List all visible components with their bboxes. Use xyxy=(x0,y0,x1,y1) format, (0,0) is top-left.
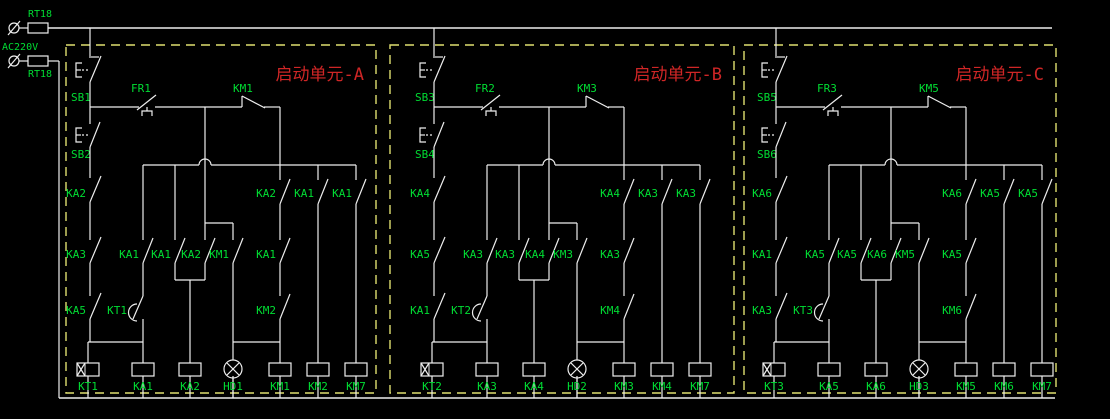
coil-label: KM7 xyxy=(346,380,366,393)
fuse-icon xyxy=(28,56,48,66)
component-label: KA5 xyxy=(942,248,962,261)
unit-frame xyxy=(390,45,734,393)
coil-label: KM6 xyxy=(994,380,1014,393)
component-label: KA5 xyxy=(66,304,86,317)
coil-label: KM7 xyxy=(1032,380,1052,393)
relay-coil xyxy=(269,363,291,376)
unit-title: 启动单元-C xyxy=(956,65,1044,85)
component-label: KA2 xyxy=(256,187,276,200)
component-label: KA5 xyxy=(837,248,857,261)
fuse-icon xyxy=(28,23,48,33)
circuit-schematic: RT18AC220VRT18启动单元-ASB1SB2KA2KA3KA5FR1KM… xyxy=(0,0,1110,419)
contact-blade xyxy=(280,179,290,204)
component-label: KA3 xyxy=(676,187,696,200)
component-label: KA1 xyxy=(294,187,314,200)
unit-frame xyxy=(66,45,376,393)
relay-coil xyxy=(689,363,711,376)
component-label: KA1 xyxy=(332,187,352,200)
component-label: KA1 xyxy=(119,248,139,261)
coil-label: KM2 xyxy=(308,380,328,393)
contact-blade xyxy=(356,179,366,204)
coil-label: KM5 xyxy=(956,380,976,393)
contact-blade xyxy=(434,293,445,319)
contact-blade xyxy=(586,96,609,108)
stop-button-label: SB3 xyxy=(415,91,435,104)
voltage-label: AC220V xyxy=(2,42,38,53)
stop-button-label: SB5 xyxy=(757,91,777,104)
coil-label: HD1 xyxy=(223,380,243,393)
start-button-label: SB2 xyxy=(71,148,91,161)
contact-blade xyxy=(966,294,976,319)
contact-blade xyxy=(90,293,101,319)
contact-blade xyxy=(90,237,101,263)
component-label: KA6 xyxy=(867,248,887,261)
relay-coil xyxy=(179,363,201,376)
relay-coil xyxy=(345,363,367,376)
coil-label: KA6 xyxy=(866,380,886,393)
relay-coil xyxy=(955,363,977,376)
contact-blade xyxy=(318,179,328,204)
component-label: KA3 xyxy=(600,248,620,261)
contact-blade xyxy=(776,56,787,82)
thermal-heater-icon xyxy=(142,111,152,116)
coil-label: KM7 xyxy=(690,380,710,393)
contact-blade xyxy=(90,56,101,82)
coil-label: KA3 xyxy=(477,380,497,393)
contact-blade xyxy=(624,294,634,319)
component-label: KA5 xyxy=(805,248,825,261)
contact-blade xyxy=(133,296,143,319)
contact-blade xyxy=(966,238,976,263)
component-label: KA4 xyxy=(600,187,620,200)
component-label: KA4 xyxy=(525,248,545,261)
start-unit-A: 启动单元-ASB1SB2KA2KA3KA5FR1KM1KA1KT1KA1KA2K… xyxy=(66,28,376,398)
component-label: KA1 xyxy=(151,248,171,261)
contact-blade xyxy=(434,237,445,263)
thermal-relay-label: FR1 xyxy=(131,82,151,95)
start-unit-B: 启动单元-BSB3SB4KA4KA5KA1FR2KM3KA3KT2KA3KA4K… xyxy=(390,28,734,398)
relay-coil xyxy=(307,363,329,376)
contact-blade xyxy=(776,176,787,202)
contactor-contact-label: KM3 xyxy=(577,82,597,95)
component-label: KA5 xyxy=(980,187,1000,200)
component-label: KA1 xyxy=(410,304,430,317)
start-unit-C: 启动单元-CSB5SB6KA6KA1KA3FR3KM5KA5KT3KA5KA6K… xyxy=(744,28,1056,398)
coil-label: HD3 xyxy=(909,380,929,393)
contact-blade xyxy=(624,179,634,204)
coil-label: KM1 xyxy=(270,380,290,393)
contact-blade xyxy=(280,238,290,263)
component-label: KA2 xyxy=(181,248,201,261)
contact-blade xyxy=(434,56,445,82)
contact-blade xyxy=(776,237,787,263)
contact-blade xyxy=(700,179,710,204)
component-label: KA1 xyxy=(752,248,772,261)
coil-label: KT1 xyxy=(78,380,98,393)
component-label: KM6 xyxy=(942,304,962,317)
relay-coil xyxy=(818,363,840,376)
contact-blade xyxy=(1004,179,1014,204)
fuse-top-label: RT18 xyxy=(28,9,52,20)
component-label: KA6 xyxy=(942,187,962,200)
component-label: KA3 xyxy=(495,248,515,261)
component-label: KA4 xyxy=(410,187,430,200)
component-label: KA3 xyxy=(752,304,772,317)
component-label: KA2 xyxy=(66,187,86,200)
power-feed: RT18AC220VRT18 xyxy=(2,9,1055,398)
contact-blade xyxy=(434,176,445,202)
relay-coil xyxy=(613,363,635,376)
relay-coil xyxy=(993,363,1015,376)
contact-blade xyxy=(966,179,976,204)
component-label: KA6 xyxy=(752,187,772,200)
contact-blade xyxy=(776,293,787,319)
contactor-contact-label: KM5 xyxy=(919,82,939,95)
component-label: KM4 xyxy=(600,304,620,317)
stop-button-label: SB1 xyxy=(71,91,91,104)
contact-blade xyxy=(90,176,101,202)
start-button-label: SB6 xyxy=(757,148,777,161)
relay-coil xyxy=(476,363,498,376)
component-label: KM3 xyxy=(553,248,573,261)
contact-blade xyxy=(624,238,634,263)
start-button-label: SB4 xyxy=(415,148,435,161)
contact-blade xyxy=(662,179,672,204)
coil-label: HD2 xyxy=(567,380,587,393)
contact-blade xyxy=(928,96,951,108)
contact-blade xyxy=(477,296,487,319)
relay-coil xyxy=(1031,363,1053,376)
component-label: KA3 xyxy=(638,187,658,200)
contact-blade xyxy=(776,122,786,147)
relay-coil xyxy=(523,363,545,376)
component-label: KA5 xyxy=(410,248,430,261)
contact-blade xyxy=(819,296,829,319)
contactor-contact-label: KM1 xyxy=(233,82,253,95)
timer-contact-label: KT1 xyxy=(107,304,127,317)
contact-blade xyxy=(242,96,265,108)
contact-blade xyxy=(280,294,290,319)
thermal-heater-icon xyxy=(486,111,496,116)
thermal-heater-icon xyxy=(828,111,838,116)
coil-label: KA2 xyxy=(180,380,200,393)
coil-label: KT2 xyxy=(422,380,442,393)
relay-coil xyxy=(865,363,887,376)
contact-blade xyxy=(90,122,100,147)
coil-label: KM3 xyxy=(614,380,634,393)
unit-title: 启动单元-A xyxy=(276,65,364,85)
contact-blade xyxy=(577,238,587,263)
component-label: KA1 xyxy=(256,248,276,261)
fuse-bottom-label: RT18 xyxy=(28,69,52,80)
thermal-relay-label: FR3 xyxy=(817,82,837,95)
unit-title: 启动单元-B xyxy=(634,65,722,85)
timer-contact-label: KT2 xyxy=(451,304,471,317)
component-label: KM2 xyxy=(256,304,276,317)
component-label: KA3 xyxy=(66,248,86,261)
relay-coil xyxy=(651,363,673,376)
unit-frame xyxy=(744,45,1056,393)
contact-blade xyxy=(919,238,929,263)
coil-label: KA5 xyxy=(819,380,839,393)
timer-contact-label: KT3 xyxy=(793,304,813,317)
coil-label: KM4 xyxy=(652,380,672,393)
component-label: KA3 xyxy=(463,248,483,261)
coil-label: KT3 xyxy=(764,380,784,393)
coil-label: KA1 xyxy=(133,380,153,393)
contact-blade xyxy=(434,122,444,147)
contact-blade xyxy=(1042,179,1052,204)
relay-coil xyxy=(132,363,154,376)
coil-label: KA4 xyxy=(524,380,544,393)
component-label: KA5 xyxy=(1018,187,1038,200)
component-label: KM5 xyxy=(895,248,915,261)
thermal-relay-label: FR2 xyxy=(475,82,495,95)
component-label: KM1 xyxy=(209,248,229,261)
contact-blade xyxy=(233,238,243,263)
